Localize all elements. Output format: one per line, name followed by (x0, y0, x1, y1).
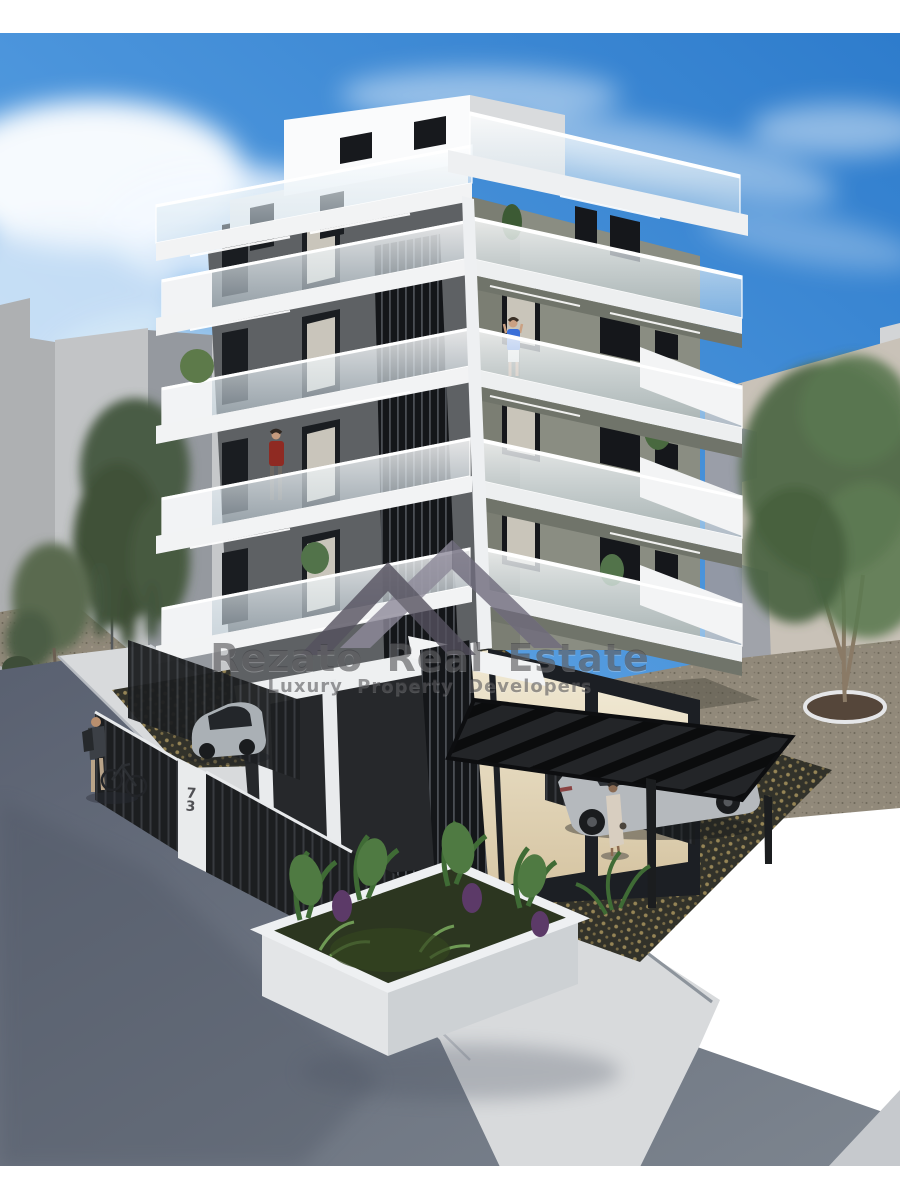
cyclist-head (91, 717, 101, 727)
cyclist-backpack (82, 728, 94, 752)
sports-car-taillight (560, 788, 572, 790)
planter-shadow (300, 1044, 620, 1100)
letterbox-bottom (0, 1166, 900, 1200)
suv-wheel (239, 739, 255, 755)
balcony-plant (301, 542, 329, 574)
scene-canvas (0, 0, 900, 1200)
watermark-subtitle: Luxury Property Developers (130, 676, 730, 697)
letterbox-top (0, 0, 900, 33)
watermark-title: Rezato Real Estate (130, 636, 730, 680)
wheel-hub (587, 817, 597, 827)
pergola-post (764, 795, 772, 864)
gate-street-number: 73 (185, 788, 202, 816)
suv-wheel (199, 743, 215, 759)
architectural-render: Rezato Real Estate Luxury Property Devel… (0, 0, 900, 1200)
balcony-plant-ball-tree (180, 349, 214, 383)
person-torso (269, 441, 284, 466)
handbag (620, 823, 627, 830)
gate-pillar (178, 758, 206, 872)
